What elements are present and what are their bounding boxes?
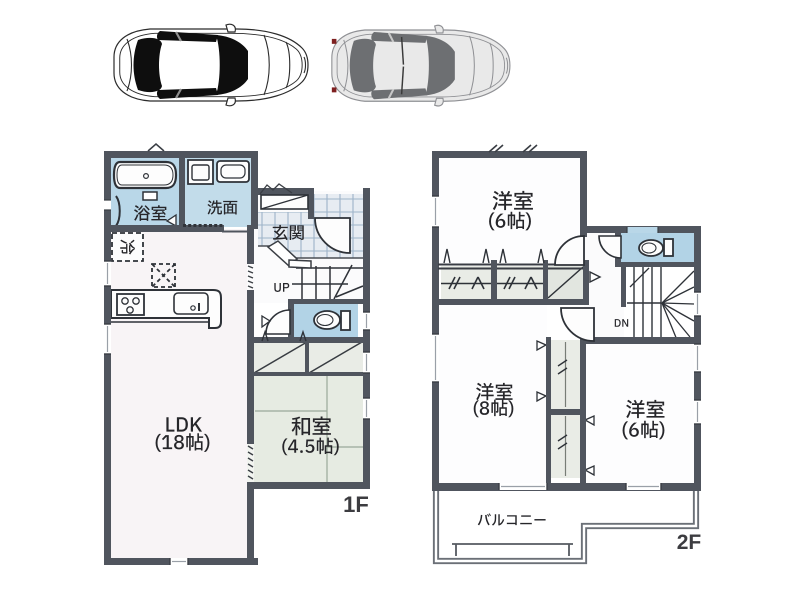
svg-text:2F: 2F	[677, 531, 702, 554]
svg-text:1F: 1F	[343, 492, 369, 517]
